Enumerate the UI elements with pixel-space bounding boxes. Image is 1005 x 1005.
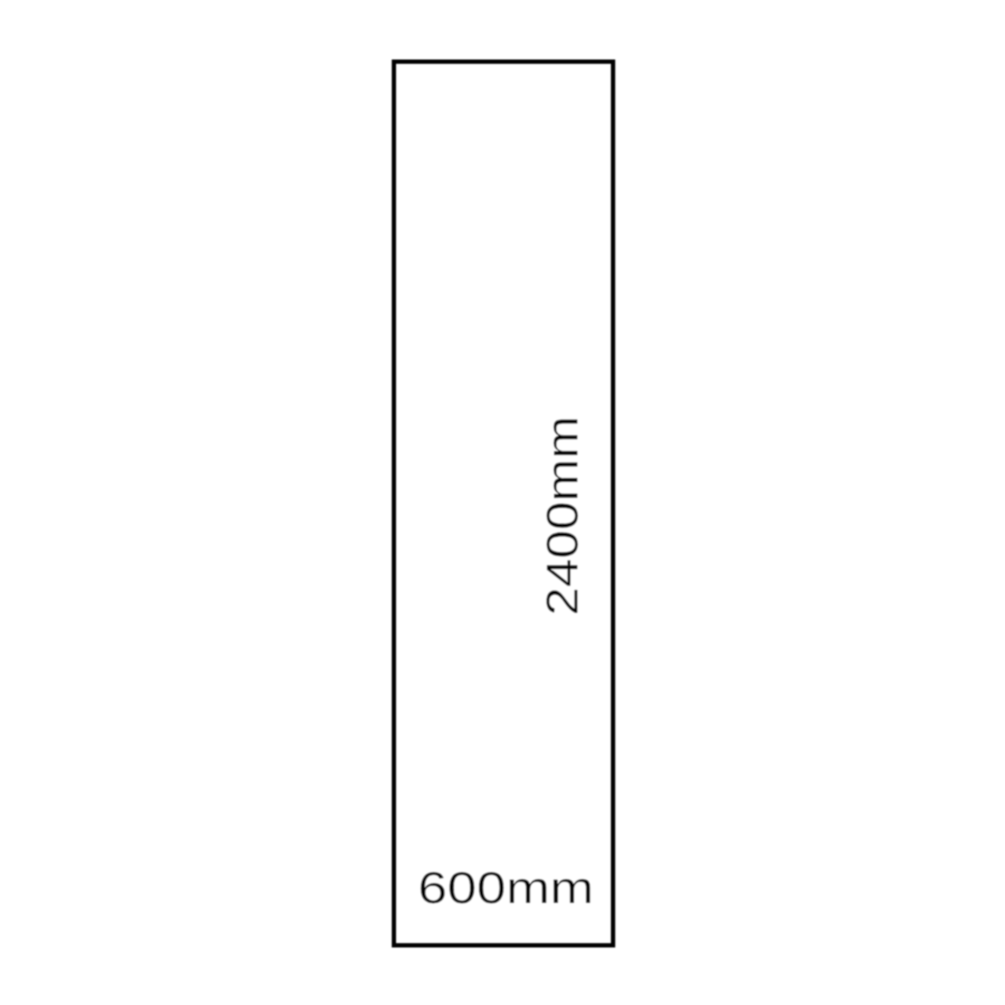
svg-text:600mm: 600mm [418, 864, 594, 913]
svg-text:2400mm: 2400mm [538, 416, 587, 616]
